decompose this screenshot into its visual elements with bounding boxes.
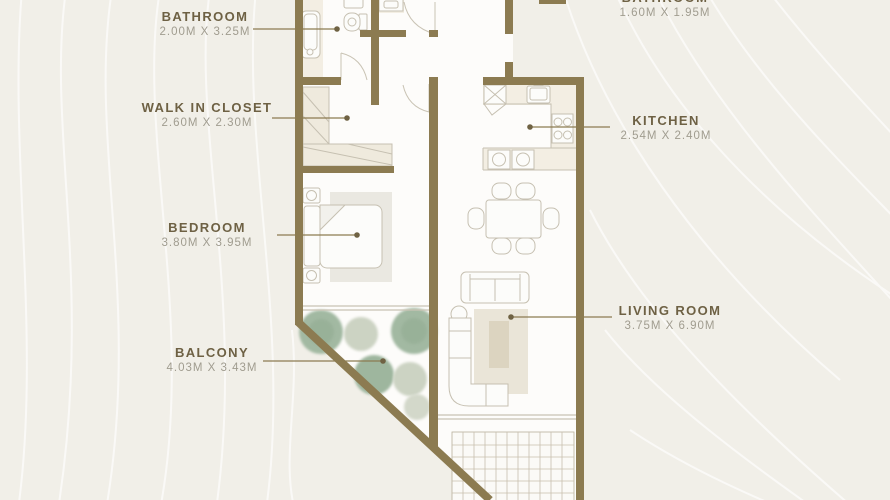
bathtub-icon: [301, 11, 320, 58]
nightstand-icon: [303, 188, 320, 203]
wall-left: [295, 0, 303, 325]
wall-right: [576, 77, 584, 500]
nightstand-icon: [303, 268, 320, 283]
room-dimensions: 3.80M X 3.95M: [162, 237, 253, 250]
room-name: KITCHEN: [621, 114, 712, 128]
room-label-balcony: BALCONY 4.03M X 3.43M: [167, 346, 258, 375]
plant-icon: [393, 362, 427, 396]
wall-bathroom2-bottom: [360, 30, 406, 37]
room-name: WALK IN CLOSET: [142, 101, 273, 115]
room-label-kitchen: KITCHEN 2.54M X 2.40M: [621, 114, 712, 143]
plant-icon: [401, 318, 427, 344]
room-label-living-room: LIVING ROOM 3.75M X 6.90M: [619, 304, 722, 333]
wall-hall-lower: [505, 62, 513, 77]
dining-table-icon: [486, 200, 541, 238]
room-label-bathroom-2: BATHROOM 1.60M X 1.95M: [620, 0, 711, 20]
room-label-bedroom: BEDROOM 3.80M X 3.95M: [162, 221, 253, 250]
room-dimensions: 2.60M X 2.30M: [142, 117, 273, 130]
toilet-icon: [344, 13, 367, 31]
stove-icon: [552, 114, 573, 143]
wall-hall-upper: [505, 0, 513, 34]
plant-icon: [344, 317, 378, 351]
room-dimensions: 1.60M X 1.95M: [620, 7, 711, 20]
room-name: LIVING ROOM: [619, 304, 722, 318]
wall-central-stub: [429, 30, 438, 37]
room-dimensions: 4.03M X 3.43M: [167, 362, 258, 375]
coffee-table: [489, 321, 509, 368]
leader-dot: [508, 314, 514, 320]
sink-icon: [344, 0, 363, 8]
wardrobe-icon: [303, 87, 329, 144]
wall-fragment-top-right: [539, 0, 566, 4]
room-name: BATHROOM: [620, 0, 711, 5]
balcony-plants: [299, 308, 437, 420]
bed-icon: [304, 205, 382, 268]
room-name: BALCONY: [167, 346, 258, 360]
terrace-tile-grid: [452, 432, 574, 500]
room-dimensions: 2.00M X 3.25M: [160, 26, 251, 39]
wall-bathrooms-divider: [371, 0, 379, 105]
plant-icon: [404, 394, 430, 420]
wall-bathroom1-bottom: [295, 77, 341, 85]
wall-closet-bottom: [295, 166, 394, 173]
room-name: BEDROOM: [162, 221, 253, 235]
leader-dot: [527, 124, 533, 130]
leader-dot: [344, 115, 350, 121]
room-label-walk-in-closet: WALK IN CLOSET 2.60M X 2.30M: [142, 101, 273, 130]
leader-dot: [334, 26, 340, 32]
wardrobe-icon: [303, 144, 392, 166]
room-dimensions: 3.75M X 6.90M: [619, 320, 722, 333]
floor-plan-drawing: [0, 0, 890, 500]
floor-plan-canvas: BATHROOM 2.00M X 3.25M BATHROOM 1.60M X …: [0, 0, 890, 500]
room-dimensions: 2.54M X 2.40M: [621, 130, 712, 143]
leader-dot: [380, 358, 386, 364]
leader-dot: [354, 232, 360, 238]
wall-central: [429, 77, 438, 448]
wall-kitchen-top: [483, 77, 584, 85]
vanity-sink-icon: [379, 0, 403, 11]
sofa-icon: [461, 272, 529, 303]
room-label-bathroom-1: BATHROOM 2.00M X 3.25M: [160, 10, 251, 39]
room-name: BATHROOM: [160, 10, 251, 24]
